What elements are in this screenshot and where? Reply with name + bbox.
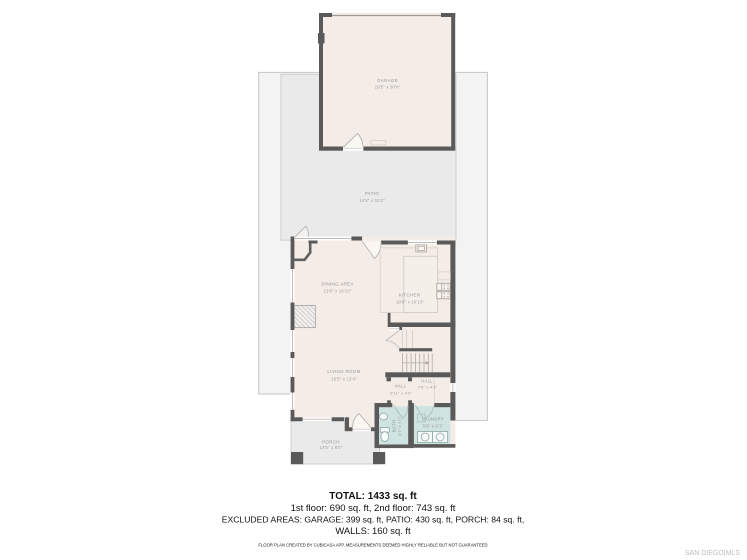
svg-text:13'6" x 10'10": 13'6" x 10'10" <box>323 289 351 294</box>
svg-text:16'5" x 13'4": 16'5" x 13'4" <box>331 377 357 382</box>
svg-text:WALLS: 160 sq. ft: WALLS: 160 sq. ft <box>335 525 411 536</box>
svg-text:1st floor: 690 sq. ft, 2nd flo: 1st floor: 690 sq. ft, 2nd floor: 743 sq… <box>291 503 456 514</box>
svg-text:EXCLUDED AREAS: GARAGE: 399 sq: EXCLUDED AREAS: GARAGE: 399 sq. ft, PATI… <box>222 515 524 525</box>
svg-text:PATIO: PATIO <box>365 191 380 196</box>
svg-text:3'11" x 4'3": 3'11" x 4'3" <box>390 390 412 395</box>
svg-text:5'8" x 6'1": 5'8" x 6'1" <box>423 424 444 429</box>
svg-text:DINING AREA: DINING AREA <box>321 282 353 287</box>
svg-text:14'5" x 6'0": 14'5" x 6'0" <box>319 445 342 450</box>
svg-text:19'5" x 30'0": 19'5" x 30'0" <box>375 84 401 89</box>
svg-text:GARAGE: GARAGE <box>377 78 398 83</box>
svg-text:TOTAL: 1433 sq. ft: TOTAL: 1433 sq. ft <box>329 491 417 502</box>
svg-text:PORCH: PORCH <box>322 440 340 445</box>
svg-text:BATH: BATH <box>392 420 397 433</box>
svg-text:LAUNDRY: LAUNDRY <box>422 417 444 422</box>
svg-text:HALL: HALL <box>421 379 433 384</box>
svg-text:3'7" x 6'7": 3'7" x 6'7" <box>397 416 402 436</box>
svg-text:10'5" x 10'10": 10'5" x 10'10" <box>396 300 424 305</box>
svg-text:KITCHEN: KITCHEN <box>399 293 421 298</box>
svg-text:SAN DIEGO|MLS: SAN DIEGO|MLS <box>685 550 740 557</box>
svg-text:14'8" x 31'3": 14'8" x 31'3" <box>359 198 385 203</box>
svg-text:LIVING ROOM: LIVING ROOM <box>327 369 360 374</box>
svg-text:HALL: HALL <box>395 384 407 389</box>
svg-text:7'8" x 4'3": 7'8" x 4'3" <box>418 385 438 390</box>
svg-text:FLOOR PLAN CREATED BY CUBICASA: FLOOR PLAN CREATED BY CUBICASA APP. MEAS… <box>258 543 487 548</box>
